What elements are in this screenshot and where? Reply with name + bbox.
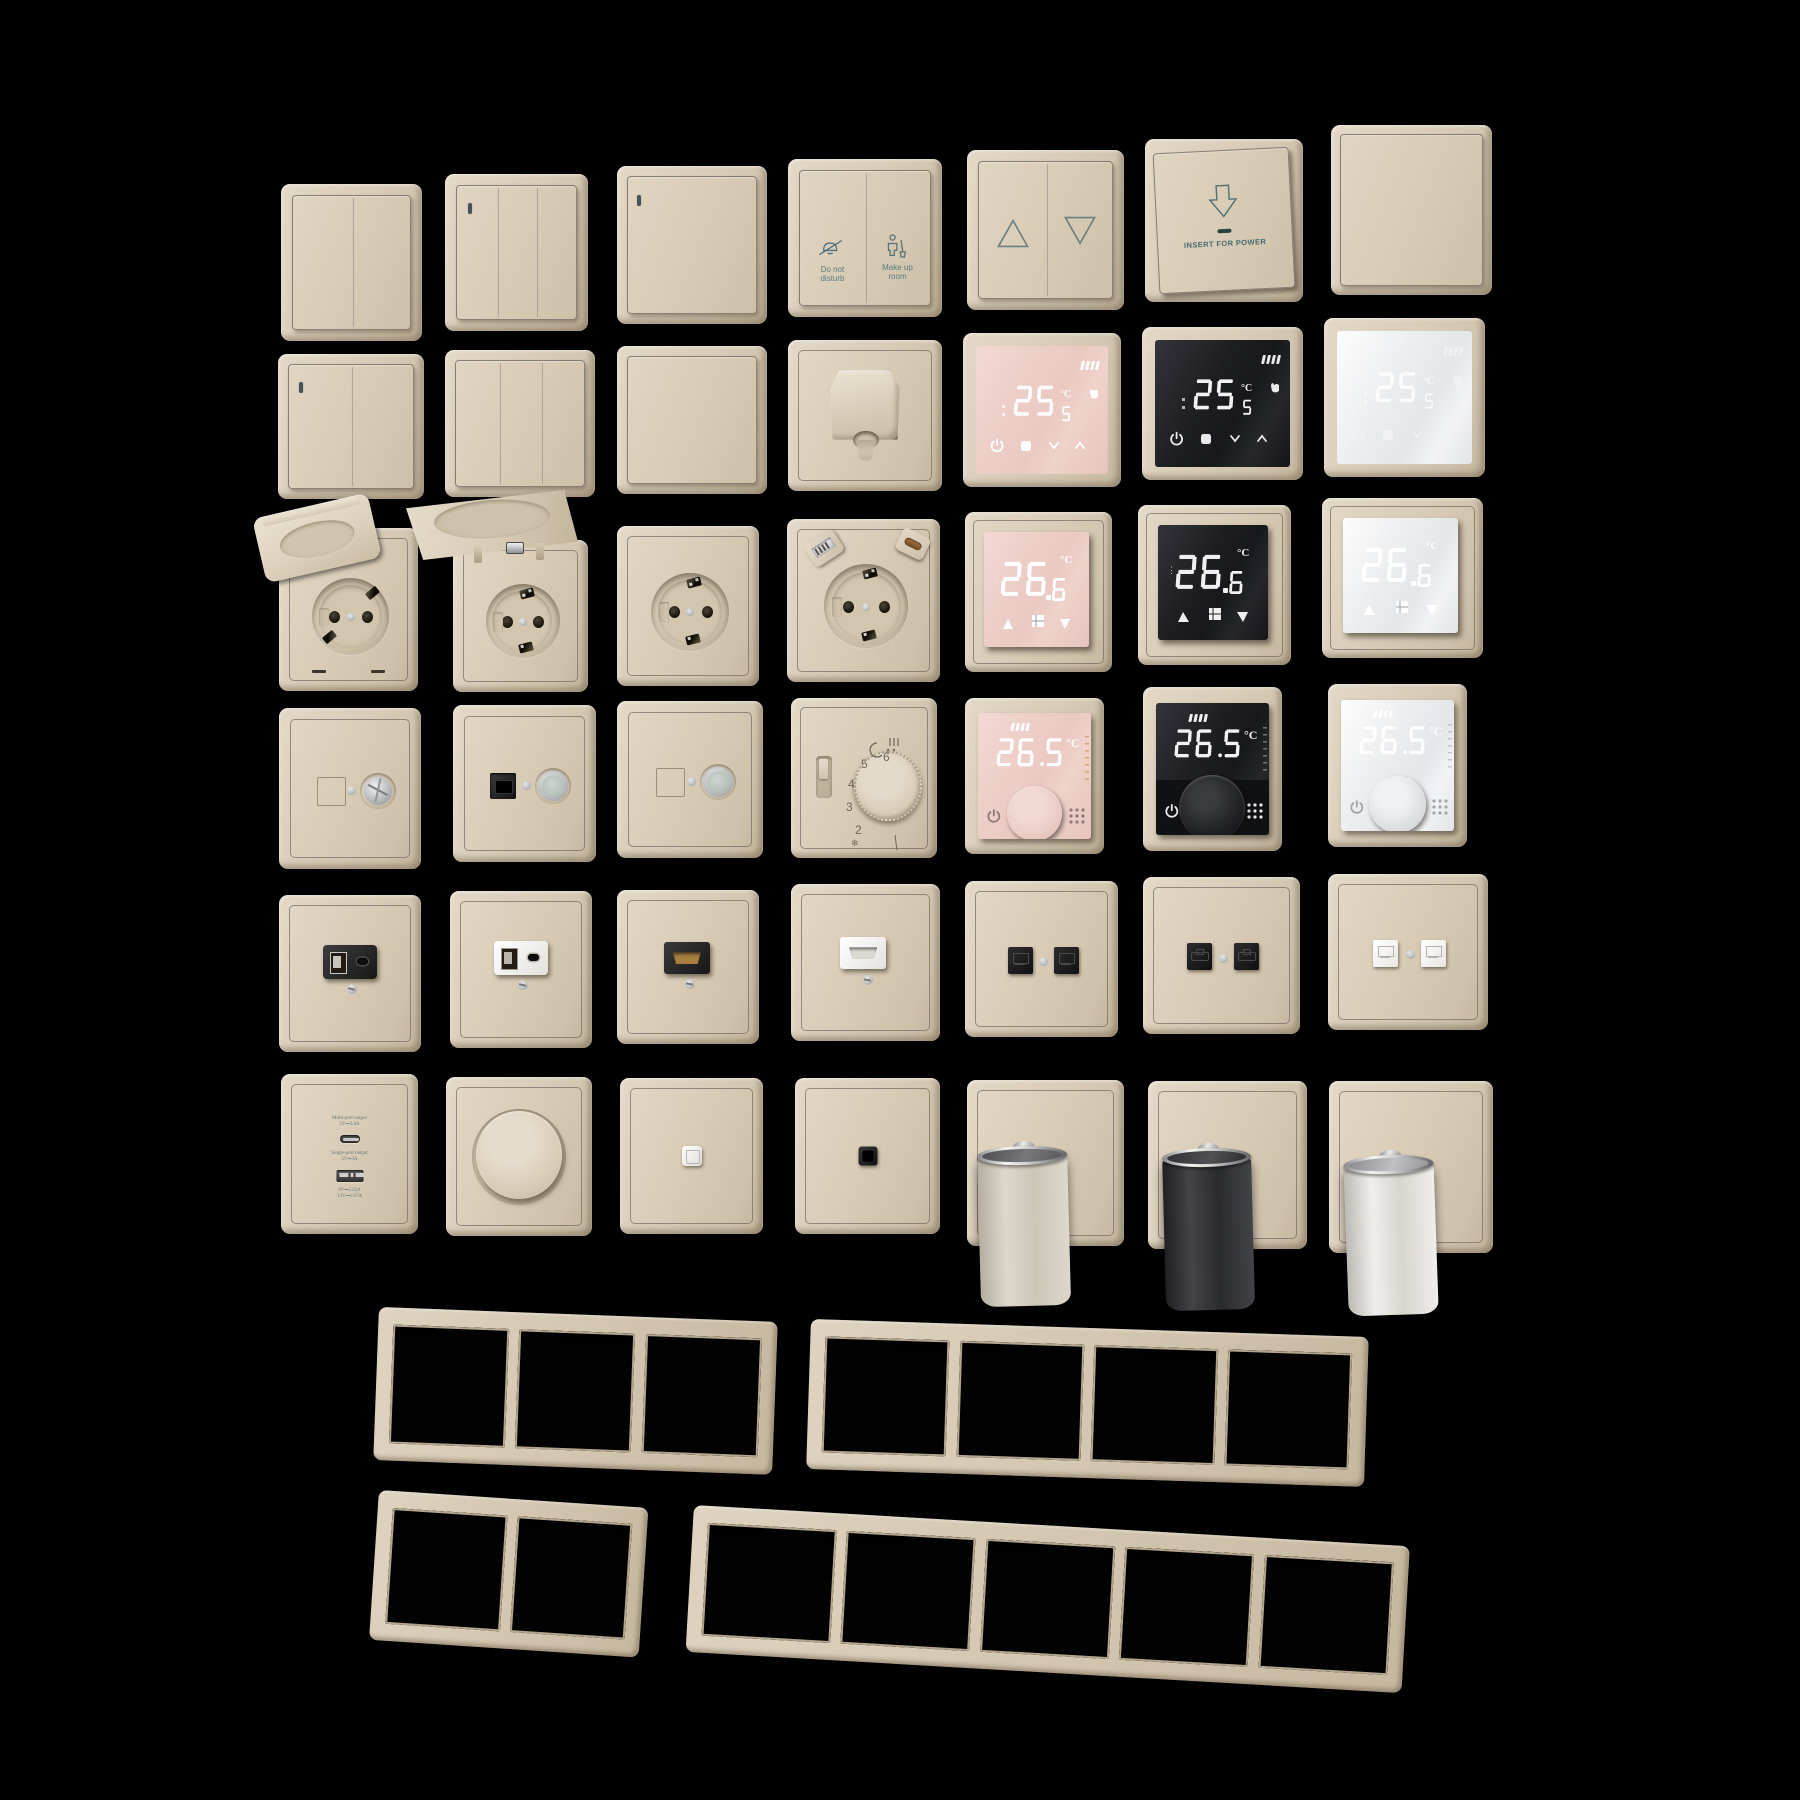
svg-text:⋮: ⋮	[1167, 565, 1176, 575]
svg-text:4: 4	[848, 777, 855, 791]
svg-text:°C: °C	[1237, 547, 1249, 559]
svg-text:°C: °C	[1060, 389, 1071, 400]
svg-text:°C: °C	[1241, 383, 1252, 394]
svg-text:⋮: ⋮	[992, 572, 1001, 582]
svg-text:°C: °C	[1426, 540, 1438, 552]
svg-text:5: 5	[861, 757, 868, 771]
svg-text:❄: ❄	[851, 838, 859, 848]
svg-text:°C: °C	[1066, 736, 1079, 750]
svg-text:6: 6	[883, 750, 890, 764]
svg-text:°C: °C	[1060, 554, 1072, 566]
svg-text:2: 2	[855, 823, 862, 837]
svg-text:3: 3	[846, 800, 853, 814]
svg-text:⋮: ⋮	[1352, 558, 1361, 568]
svg-text:°C: °C	[1244, 728, 1257, 742]
svg-text:°C: °C	[1423, 376, 1434, 387]
svg-text:°C: °C	[1429, 724, 1442, 738]
